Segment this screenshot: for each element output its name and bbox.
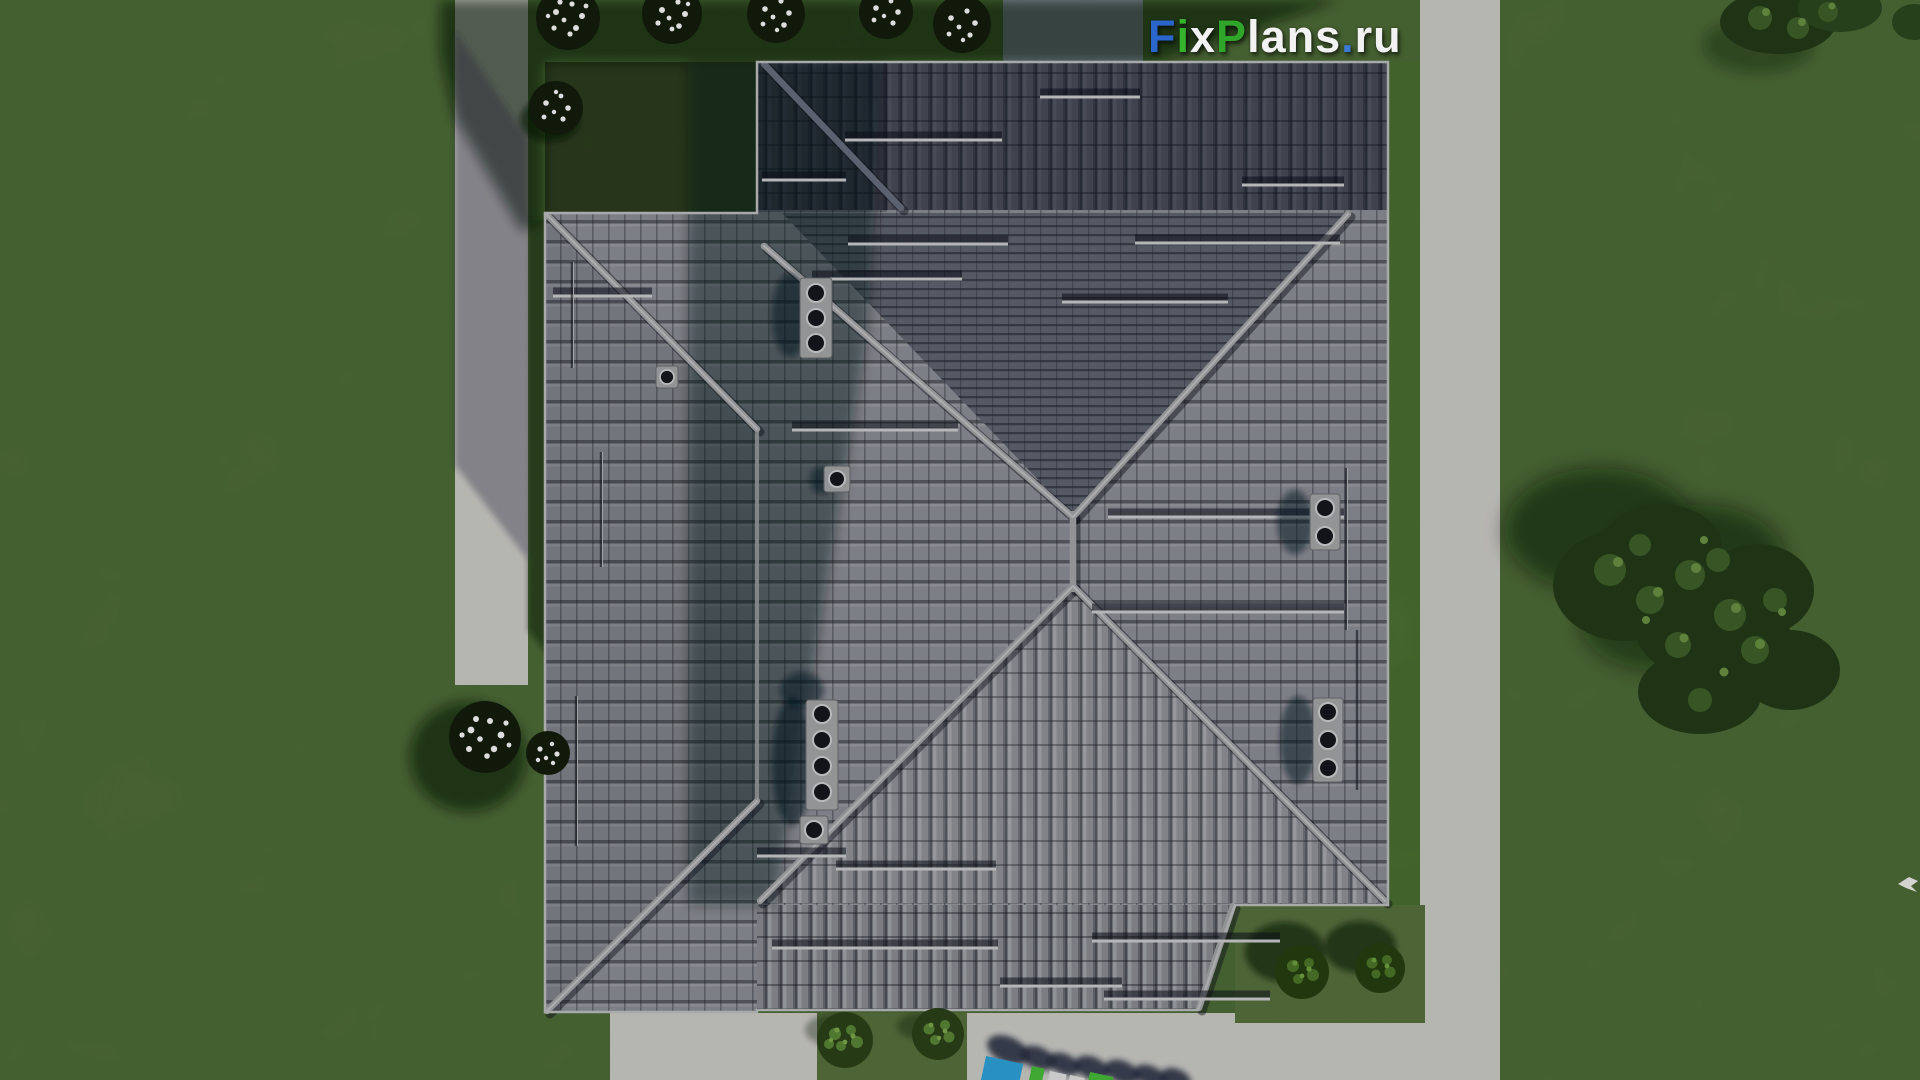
- grain-overlay: [0, 0, 1920, 1080]
- logo-letter: P: [1216, 11, 1247, 62]
- logo-letter: lans: [1247, 11, 1341, 62]
- logo-letter: .: [1341, 11, 1355, 62]
- logo-letter: ru: [1355, 11, 1402, 62]
- logo-letter: i: [1177, 11, 1191, 62]
- fixplans-logo: FixPlans.ru: [1148, 14, 1402, 59]
- aerial-site-render: FixPlans.ru: [0, 0, 1920, 1080]
- logo-letter: x: [1190, 11, 1216, 62]
- logo-letter: F: [1148, 11, 1177, 62]
- site-plan-render: [0, 0, 1920, 1080]
